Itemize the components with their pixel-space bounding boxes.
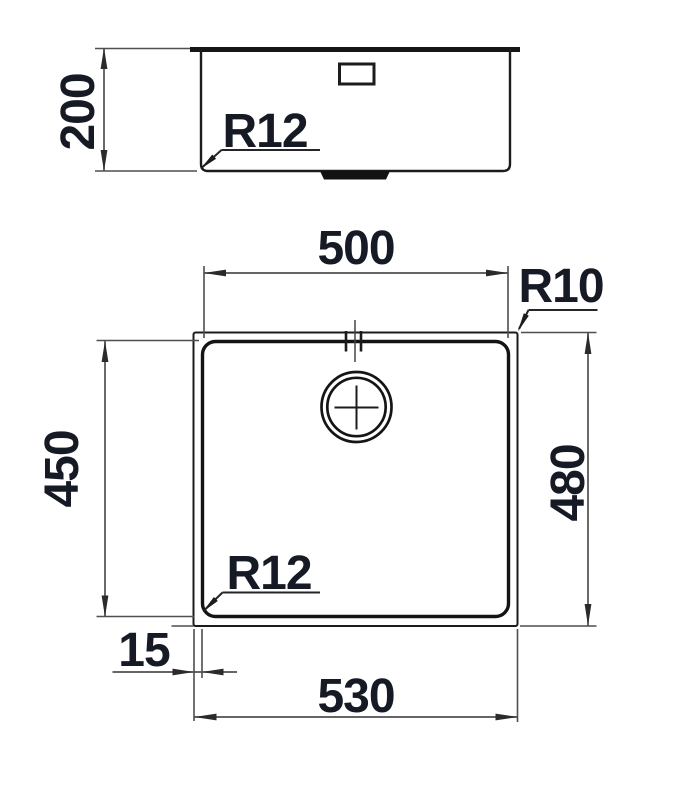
sink-technical-drawing: 200 R12 — [0, 0, 678, 800]
plan-outer-width-label: 530 — [317, 670, 394, 723]
plan-outer-corner-radius-label: R10 — [518, 260, 603, 313]
plan-rim-offset-label: 15 — [118, 624, 170, 677]
drain-boss-icon — [320, 171, 390, 180]
side-height-label: 200 — [52, 73, 105, 150]
plan-inner-depth-label: 450 — [36, 430, 89, 507]
plan-inner-width-label: 500 — [317, 222, 394, 275]
plan-inner-corner-radius-label: R12 — [226, 547, 311, 600]
drawing-canvas: 200 R12 — [0, 0, 678, 800]
side-corner-radius-label: R12 — [222, 105, 307, 158]
plan-outer-depth-label: 480 — [542, 444, 595, 521]
